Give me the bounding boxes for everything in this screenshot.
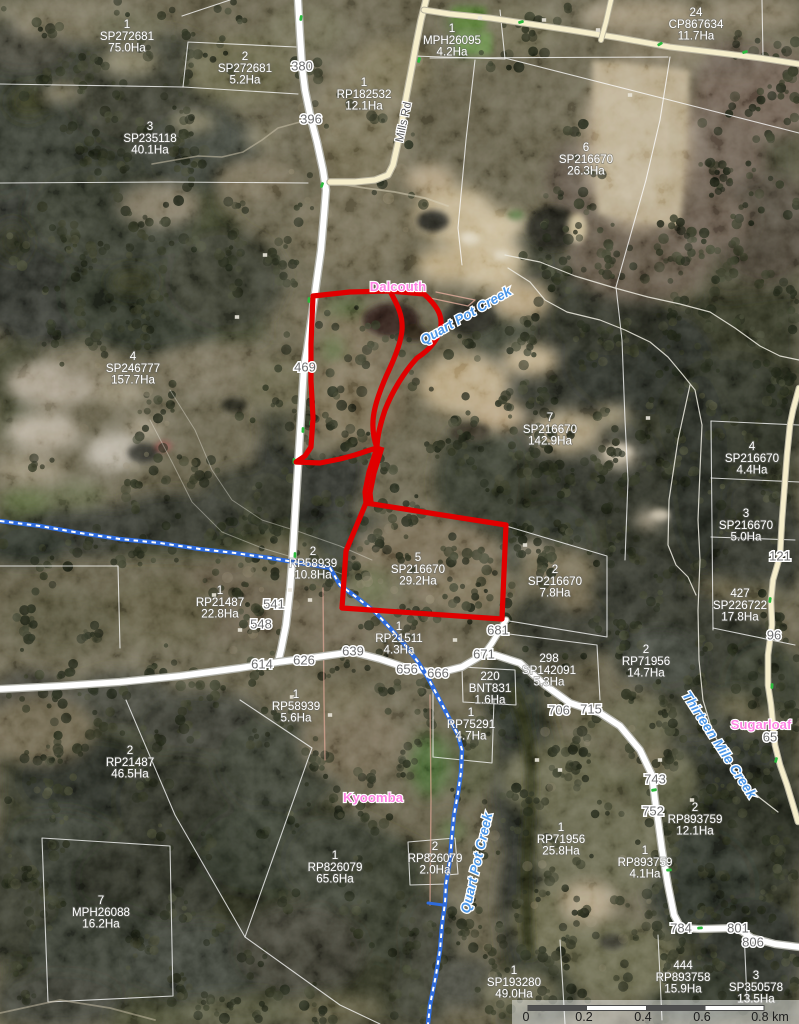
svg-text:49.0Ha: 49.0Ha bbox=[495, 988, 533, 1001]
svg-text:0.4: 0.4 bbox=[634, 1010, 651, 1024]
svg-text:671: 671 bbox=[473, 647, 495, 662]
svg-text:96: 96 bbox=[767, 628, 781, 643]
svg-text:5.0Ha: 5.0Ha bbox=[731, 531, 762, 544]
svg-text:12.1Ha: 12.1Ha bbox=[676, 825, 714, 838]
svg-text:548: 548 bbox=[250, 617, 272, 632]
svg-text:16.2Ha: 16.2Ha bbox=[82, 918, 120, 931]
svg-text:17.8Ha: 17.8Ha bbox=[721, 611, 759, 624]
svg-text:614: 614 bbox=[251, 657, 273, 672]
svg-text:380: 380 bbox=[291, 59, 313, 74]
svg-text:12.1Ha: 12.1Ha bbox=[345, 100, 383, 113]
svg-text:806: 806 bbox=[742, 935, 764, 950]
svg-text:7.8Ha: 7.8Ha bbox=[540, 587, 571, 600]
svg-text:639: 639 bbox=[342, 644, 364, 659]
svg-text:626: 626 bbox=[293, 653, 315, 668]
svg-text:0.8 km: 0.8 km bbox=[751, 1010, 789, 1024]
svg-text:Dalcouth: Dalcouth bbox=[370, 279, 426, 294]
svg-text:5.2Ha: 5.2Ha bbox=[230, 74, 261, 87]
svg-text:121: 121 bbox=[769, 549, 791, 564]
svg-text:29.2Ha: 29.2Ha bbox=[399, 575, 437, 588]
svg-text:1.6Ha: 1.6Ha bbox=[475, 694, 506, 707]
svg-text:2.0Ha: 2.0Ha bbox=[420, 864, 451, 877]
svg-text:15.9Ha: 15.9Ha bbox=[664, 983, 702, 996]
svg-text:157.7Ha: 157.7Ha bbox=[111, 374, 155, 387]
svg-text:541: 541 bbox=[263, 597, 285, 612]
svg-text:75.0Ha: 75.0Ha bbox=[108, 42, 146, 55]
svg-text:25.8Ha: 25.8Ha bbox=[542, 845, 580, 858]
svg-text:40.1Ha: 40.1Ha bbox=[131, 144, 169, 157]
svg-text:706: 706 bbox=[548, 703, 570, 718]
svg-text:0.2: 0.2 bbox=[575, 1010, 592, 1024]
svg-text:801: 801 bbox=[727, 921, 749, 936]
svg-text:Kyoomba: Kyoomba bbox=[343, 790, 404, 805]
svg-text:4.3Ha: 4.3Ha bbox=[384, 644, 415, 657]
svg-text:5.3Ha: 5.3Ha bbox=[534, 676, 565, 689]
svg-text:752: 752 bbox=[642, 804, 664, 819]
svg-text:46.5Ha: 46.5Ha bbox=[111, 768, 149, 781]
svg-text:26.3Ha: 26.3Ha bbox=[567, 165, 605, 178]
svg-text:784: 784 bbox=[670, 921, 692, 936]
svg-text:656: 656 bbox=[396, 662, 418, 677]
svg-text:396: 396 bbox=[300, 112, 322, 127]
svg-text:681: 681 bbox=[487, 623, 509, 638]
svg-text:65.6Ha: 65.6Ha bbox=[316, 873, 354, 886]
svg-text:743: 743 bbox=[644, 772, 666, 787]
svg-text:22.8Ha: 22.8Ha bbox=[201, 608, 239, 621]
svg-text:4.1Ha: 4.1Ha bbox=[630, 868, 661, 881]
svg-text:5.6Ha: 5.6Ha bbox=[281, 712, 312, 725]
svg-text:142.9Ha: 142.9Ha bbox=[528, 435, 572, 448]
svg-text:469: 469 bbox=[294, 360, 316, 375]
svg-text:0.6: 0.6 bbox=[693, 1010, 710, 1024]
svg-text:4.4Ha: 4.4Ha bbox=[737, 464, 768, 477]
svg-text:14.7Ha: 14.7Ha bbox=[627, 667, 665, 680]
svg-text:11.7Ha: 11.7Ha bbox=[678, 30, 715, 43]
svg-text:715: 715 bbox=[580, 702, 602, 717]
svg-text:0: 0 bbox=[523, 1010, 530, 1024]
svg-text:4.7Ha: 4.7Ha bbox=[456, 730, 487, 743]
svg-text:4.2Ha: 4.2Ha bbox=[437, 46, 468, 59]
svg-text:10.8Ha: 10.8Ha bbox=[294, 569, 332, 582]
svg-text:666: 666 bbox=[427, 666, 449, 681]
svg-text:Sugarloaf: Sugarloaf bbox=[731, 717, 792, 732]
